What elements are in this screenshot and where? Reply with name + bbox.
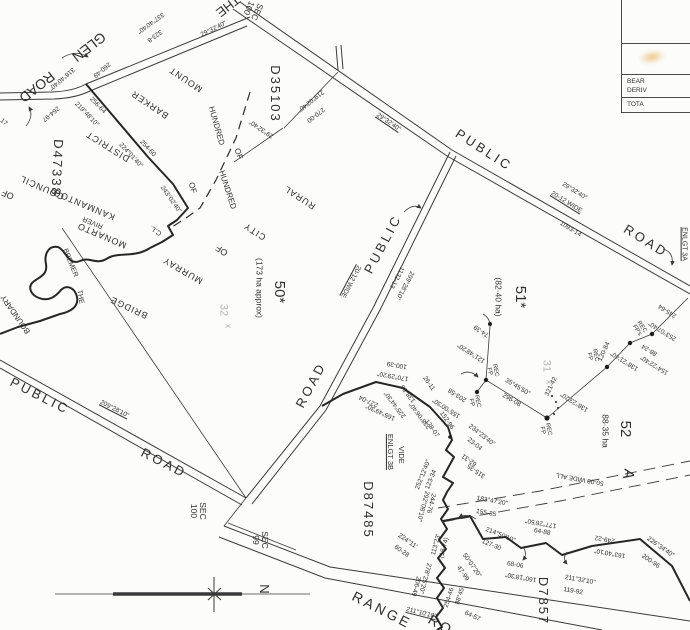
map-label: 254-46 (444, 587, 457, 608)
map-label: 17 (0, 118, 8, 128)
map-label: 50* (271, 281, 287, 304)
map-label: THE (214, 0, 243, 19)
map-label: REC FP (538, 423, 553, 438)
map-label: 50-00 WIDE ALL (556, 470, 605, 485)
map-label: 170°29'20" (377, 369, 409, 381)
map-label: 209°28'10" (98, 400, 129, 420)
map-label: A (619, 468, 636, 481)
corner-table-cell-total: TOTA (622, 98, 690, 113)
corner-table-cell-empty (622, 0, 690, 44)
map-label: CITY (242, 220, 268, 241)
map-label: 100-39 (386, 359, 407, 369)
corner-table-text: DERIV (627, 86, 690, 95)
map-label: ENLGT 3B (386, 434, 394, 470)
map-label: 254-60 (138, 139, 157, 158)
map-label: SEC 100 (189, 502, 207, 519)
map-label: SEC 99 (251, 531, 269, 548)
map-label: HUNDRED (206, 106, 225, 147)
map-label: BRIDGE (109, 294, 150, 320)
map-label: 1093-14 (558, 221, 582, 239)
map-label: 138°21'40" (610, 349, 640, 371)
map-label: 74-39 (473, 323, 491, 338)
map-label: 270-00 (305, 105, 325, 123)
map-label: 245-64 (658, 302, 679, 318)
map-label: 296-08 (501, 393, 522, 409)
map-label: 211°32'10" (564, 575, 596, 587)
map-label: 253°07'40" (648, 319, 678, 341)
map-label: 249-22 (594, 533, 615, 543)
map-label: 264-97 (40, 104, 60, 122)
map-label: 260-49 (91, 60, 111, 78)
map-label: 206-49 (409, 575, 421, 596)
map-label: 29°32'40" (200, 21, 228, 39)
map-label: GLEN (70, 30, 109, 65)
map-label: 88·35 ha (601, 414, 610, 448)
map-label: 64-88 (533, 528, 551, 538)
map-label: 138°23'20" (560, 390, 590, 412)
map-label: 127-30 (480, 539, 501, 553)
map-label: C.L. (149, 223, 164, 236)
map-label: 64-57 (463, 610, 481, 623)
map-label: REC FP's (630, 320, 647, 337)
map-label: 179-07 (422, 419, 439, 439)
label-layer: THEGLENROAD337°40'40"323-8316°40'40"260-… (0, 0, 690, 630)
map-label: ROAD (293, 360, 328, 410)
map-label: PUBLIC (453, 127, 515, 174)
map-label: VIDE (397, 446, 405, 464)
map-label: D87485 (361, 481, 375, 539)
map-label: 88°45' (455, 586, 467, 606)
corner-table-cell-bearings: BEAR DERIV (622, 75, 690, 98)
map-label: THE (75, 289, 85, 304)
map-label: 52 (617, 421, 633, 438)
map-label: 29°32'40" (375, 112, 402, 133)
map-label: (82·40 ha) (494, 277, 503, 316)
map-label: 51* (512, 286, 528, 309)
map-label: 203-58 (448, 386, 469, 403)
map-label: BARKER (130, 88, 171, 120)
survey-plan-canvas: THEGLENROAD337°40'40"323-8316°40'40"260-… (0, 0, 690, 630)
map-label: 121°48'20" (457, 341, 487, 364)
map-label: MOUNT (168, 64, 205, 93)
map-label: 160°18'30" (505, 570, 537, 582)
map-label: 119-92 (563, 587, 584, 597)
map-label: 20-12 WIDE (339, 264, 362, 298)
map-label: 32 (217, 304, 228, 316)
map-label: 183°47'20" (476, 496, 508, 508)
map-label: REC FP (485, 364, 500, 379)
map-label: 200-96 (640, 553, 660, 570)
map-label: N (257, 584, 271, 593)
map-label: OF (0, 187, 15, 201)
map-label: RURAL (283, 183, 318, 210)
map-label: ENLGT 3A (680, 227, 687, 261)
map-label: 243°02'40" (158, 185, 182, 215)
map-label: RANGE (350, 589, 414, 630)
corner-table-text: BEAR (627, 77, 690, 86)
map-label: SEC 100 (241, 0, 264, 22)
map-label: REC FP (585, 349, 600, 364)
map-label: HUNDRED (217, 170, 237, 211)
map-label: OF (214, 243, 230, 258)
map-label: 315-35 (467, 461, 487, 478)
map-label: 177°26'50" (525, 516, 557, 528)
map-label: x (223, 324, 232, 329)
map-label: 155-35 (475, 509, 496, 519)
map-label: REC FP (467, 395, 482, 410)
map-label: 163°40'10" (594, 546, 626, 558)
map-label: D35103 (268, 65, 282, 123)
map-label: D7857 (536, 577, 550, 625)
corner-table-text: TOTA (627, 101, 644, 108)
map-label: ROAD (139, 446, 189, 481)
map-label: 68-06 (506, 561, 524, 571)
map-label: OF (232, 147, 243, 160)
map-label: 323-8 (145, 27, 162, 42)
map-label: BREMER (61, 248, 79, 278)
map-label: 31 (540, 360, 551, 372)
map-label: 138-86 (400, 383, 418, 403)
map-label: 26-11 (421, 375, 436, 392)
map-label: ROAD (621, 222, 670, 260)
map-label: PUBLIC (8, 375, 72, 417)
map-label: MURRAY (161, 255, 204, 285)
map-label: BOUNDARY (0, 293, 32, 335)
map-label: OF (186, 182, 197, 195)
map-label: (173 ha approx) (255, 258, 264, 318)
